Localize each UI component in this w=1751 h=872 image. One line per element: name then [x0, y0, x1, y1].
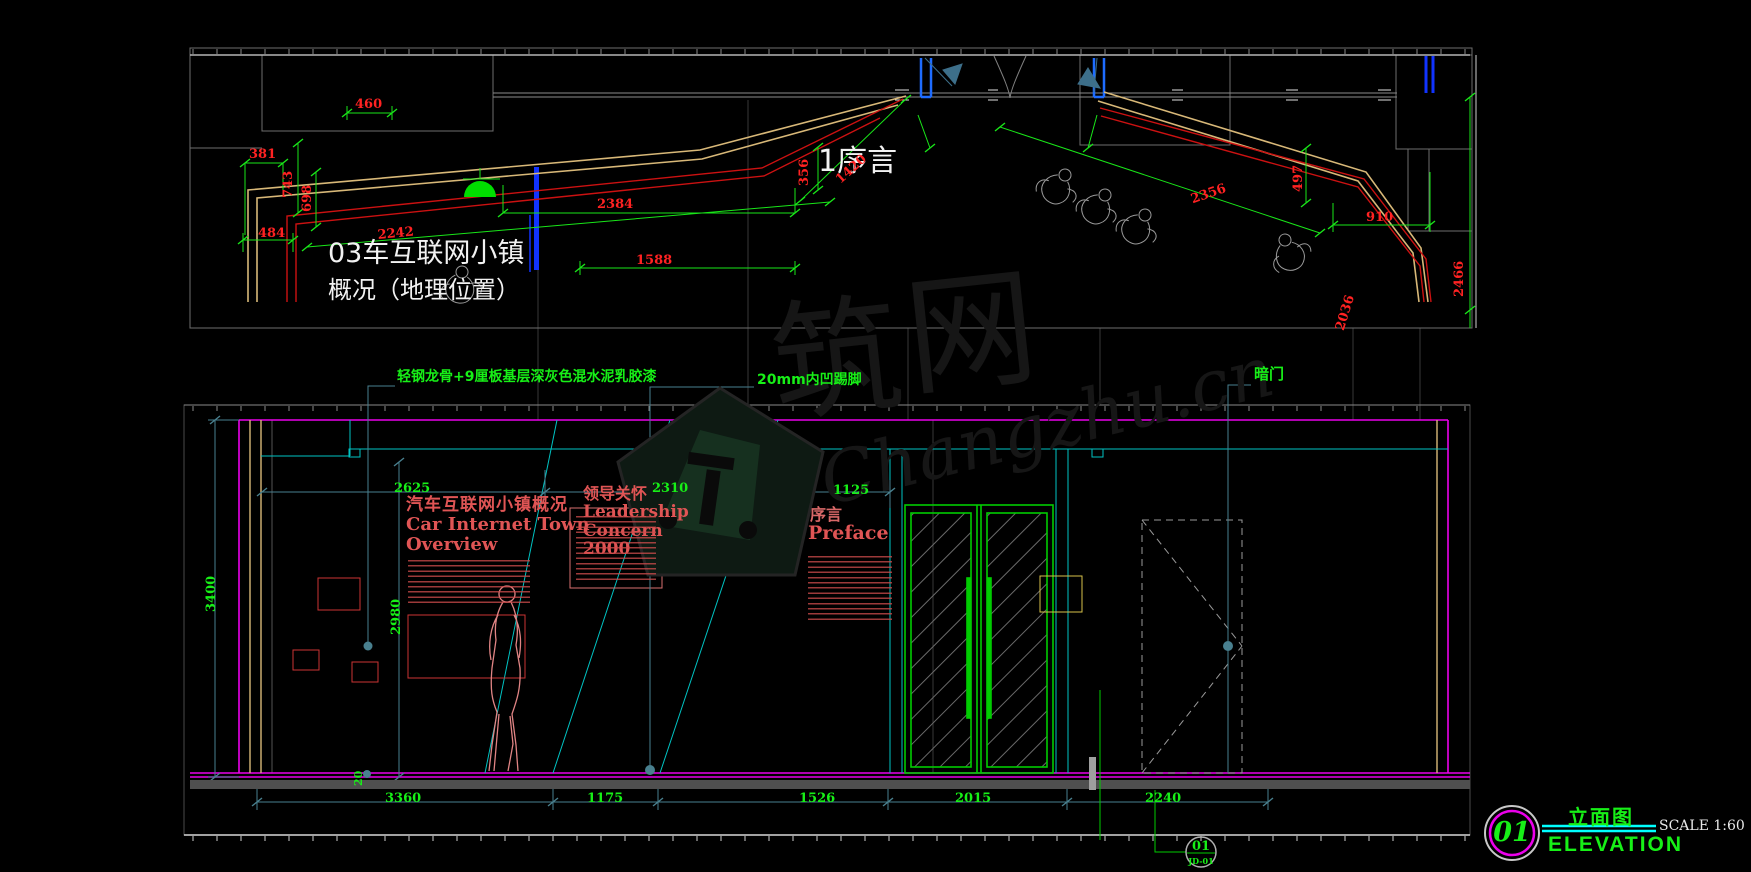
note-skirting: 20mm内凹踢脚	[757, 369, 862, 389]
dim-910: 910	[1366, 210, 1393, 225]
dim-497: 497	[1291, 165, 1306, 192]
dim-3400: 3400	[204, 576, 219, 612]
dim-381: 381	[249, 147, 276, 162]
dim-1588: 1588	[636, 253, 672, 268]
dim-2240: 2240	[1145, 791, 1181, 806]
dim-1526: 1526	[799, 791, 835, 806]
callout-number: 01	[1186, 839, 1216, 854]
dim-2036: 2036	[1333, 293, 1358, 332]
titleblock-scale: SCALE 1:60	[1659, 818, 1745, 834]
dim-2625: 2625	[394, 481, 430, 496]
board3-title-en: Preface	[808, 524, 889, 544]
plan-caption-line2: 概况（地理位置）	[328, 278, 520, 303]
dim-2980: 2980	[389, 599, 404, 635]
titleblock-title-en: ELEVATION	[1548, 833, 1683, 857]
note-wall-finish: 轻钢龙骨+9厘板基层深灰色混水泥乳胶漆	[397, 366, 656, 386]
cad-drawing-viewport: 筑 网 Changzhu.cn 1序言 03车互联网小镇 概况（地理位置） 46…	[0, 0, 1751, 872]
dim-356: 356	[797, 159, 812, 186]
plan-caption-line1: 03车互联网小镇	[328, 240, 524, 268]
dim-2356: 2356	[1189, 181, 1228, 207]
board1-title-cn: 汽车互联网小镇概况	[406, 497, 568, 515]
board1-title-en1: Car Internet Town	[406, 516, 590, 535]
callout-code: JD-01	[1186, 856, 1216, 866]
dim-1125: 1125	[833, 483, 869, 498]
note-hidden-door: 暗门	[1254, 363, 1284, 384]
dim-698: 698	[300, 185, 315, 212]
dim-20: 20	[352, 771, 365, 786]
dim-460: 460	[355, 97, 382, 112]
panel-paragraph-text	[576, 516, 656, 582]
dim-2310: 2310	[652, 481, 688, 496]
dim-1175: 1175	[587, 791, 623, 806]
dim-484: 484	[258, 226, 285, 241]
dim-2015: 2015	[955, 791, 991, 806]
board1-title-en2: Overview	[406, 536, 497, 555]
board3-paragraph-text	[808, 556, 892, 622]
dim-743: 743	[281, 171, 296, 198]
titleblock-title-cn: 立面图	[1568, 801, 1634, 830]
board1-paragraph-text	[408, 560, 530, 604]
board2-title-cn: 领导关怀	[583, 486, 647, 503]
dim-3360: 3360	[385, 791, 421, 806]
titleblock-number: 01	[1492, 817, 1532, 848]
dim-2466: 2466	[1452, 261, 1467, 297]
dim-2384: 2384	[597, 197, 633, 212]
